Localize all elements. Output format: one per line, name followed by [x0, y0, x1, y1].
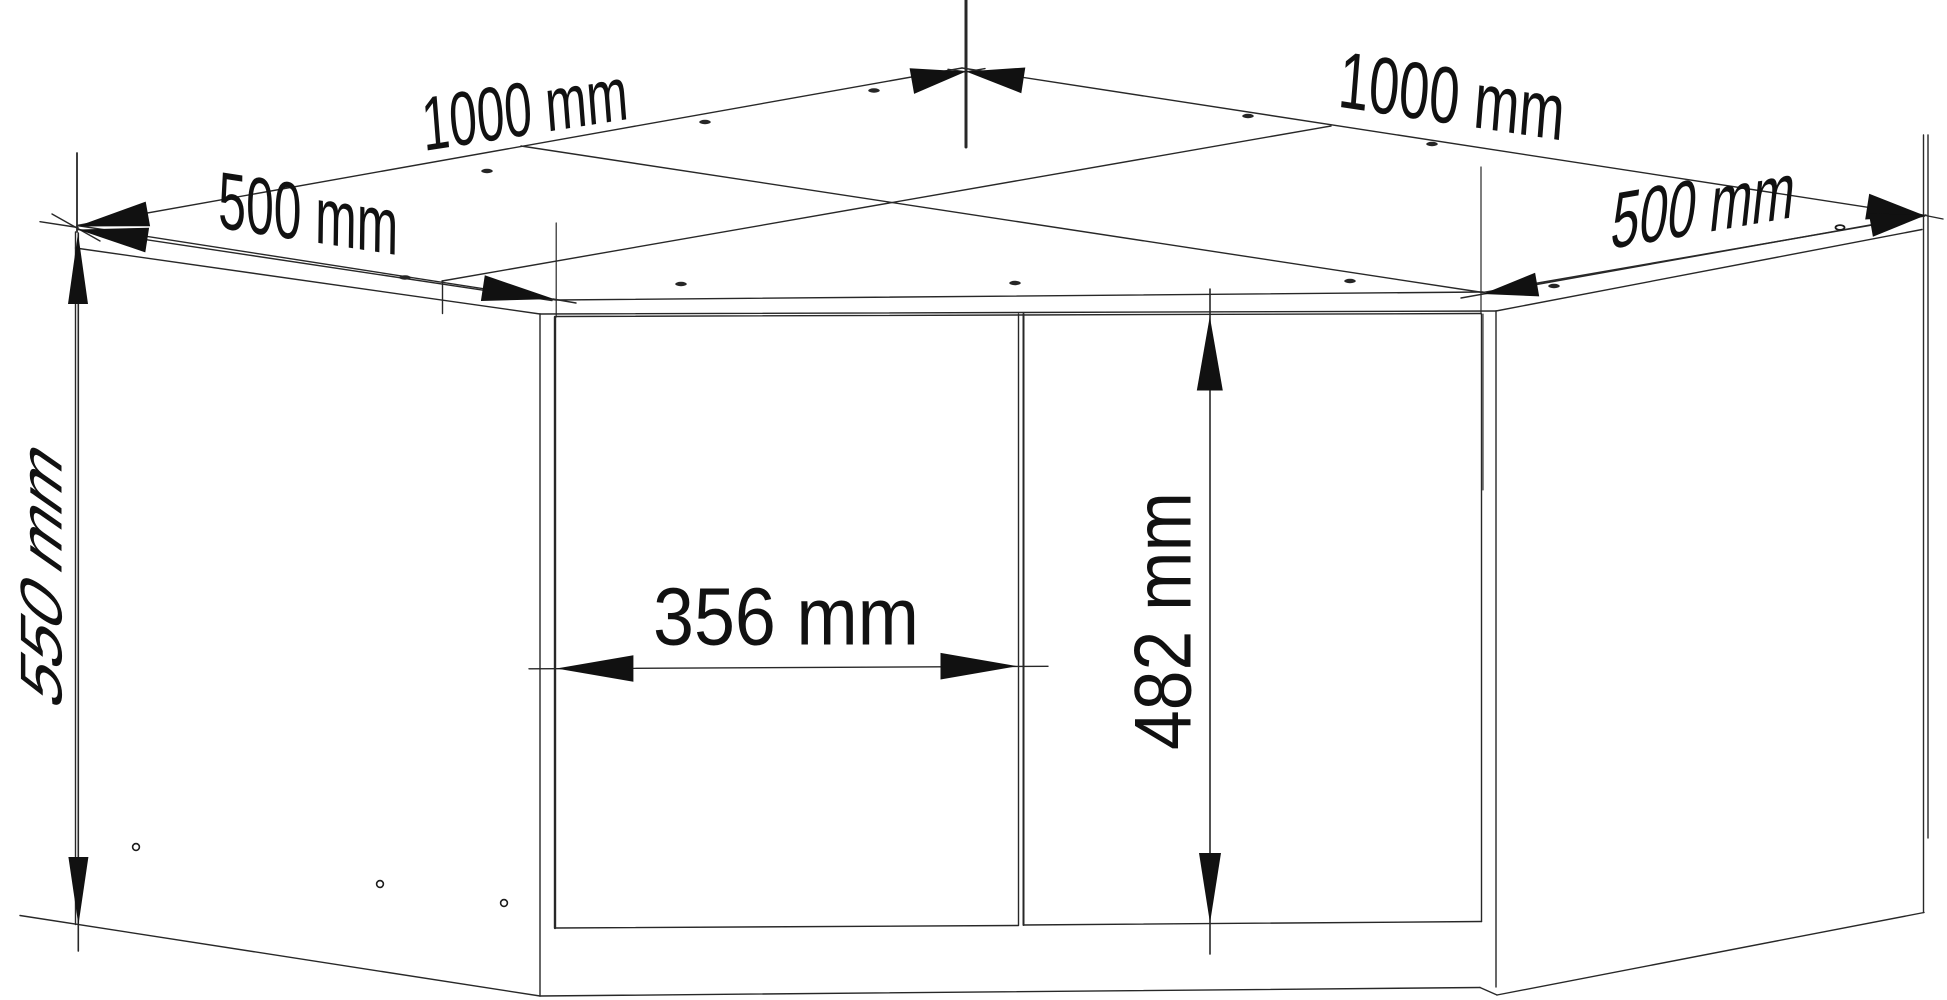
svg-text:482 mm: 482 mm [1119, 492, 1209, 750]
svg-text:550 mm: 550 mm [8, 423, 74, 721]
svg-text:356 mm: 356 mm [653, 572, 919, 663]
